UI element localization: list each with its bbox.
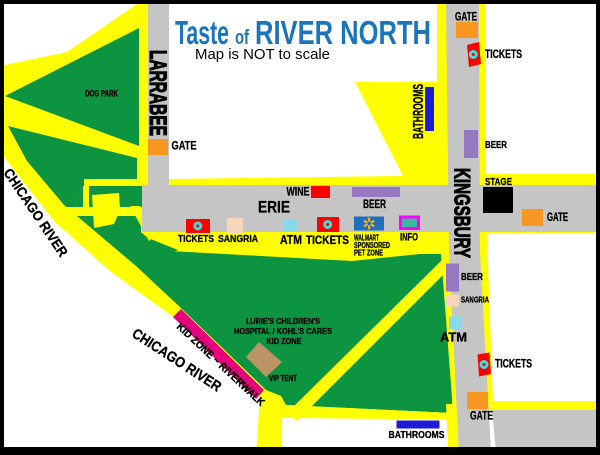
svg-text:BEER: BEER <box>363 197 386 211</box>
svg-text:TICKETS: TICKETS <box>485 49 522 61</box>
svg-text:KINGSBURY: KINGSBURY <box>450 168 475 258</box>
svg-text:KID ZONE: KID ZONE <box>267 336 302 346</box>
svg-text:SANGRIA: SANGRIA <box>218 233 258 245</box>
svg-text:TICKETS: TICKETS <box>306 235 349 247</box>
svg-text:BEER: BEER <box>485 139 507 151</box>
svg-text:INFO: INFO <box>400 232 418 244</box>
svg-text:PET ZONE: PET ZONE <box>354 249 383 258</box>
svg-text:ATM: ATM <box>280 232 302 247</box>
svg-text:LARRABEE: LARRABEE <box>144 50 171 136</box>
svg-text:BATHROOMS: BATHROOMS <box>389 430 445 441</box>
svg-text:DOG PARK: DOG PARK <box>85 89 118 99</box>
svg-text:Map is NOT to scale: Map is NOT to scale <box>195 46 330 63</box>
svg-text:GATE: GATE <box>172 139 197 153</box>
svg-text:TICKETS: TICKETS <box>495 359 532 371</box>
svg-text:BATHROOMS: BATHROOMS <box>410 84 427 139</box>
svg-text:ERIE: ERIE <box>258 199 290 217</box>
svg-text:SANGRIA: SANGRIA <box>461 296 489 305</box>
svg-text:LURIE'S CHILDREN'S: LURIE'S CHILDREN'S <box>246 316 320 326</box>
svg-text:GATE: GATE <box>455 12 477 24</box>
svg-text:GATE: GATE <box>547 212 568 224</box>
svg-text:VIP TENT: VIP TENT <box>269 373 298 383</box>
svg-text:WINE: WINE <box>287 185 310 199</box>
svg-text:BEER: BEER <box>461 271 483 283</box>
svg-text:STAGE: STAGE <box>485 176 512 188</box>
svg-text:GATE: GATE <box>470 411 493 423</box>
svg-text:TICKETS: TICKETS <box>178 233 214 245</box>
svg-text:HOSPITAL / KOHL'S CARES: HOSPITAL / KOHL'S CARES <box>234 326 332 336</box>
svg-text:ATM: ATM <box>440 330 467 345</box>
